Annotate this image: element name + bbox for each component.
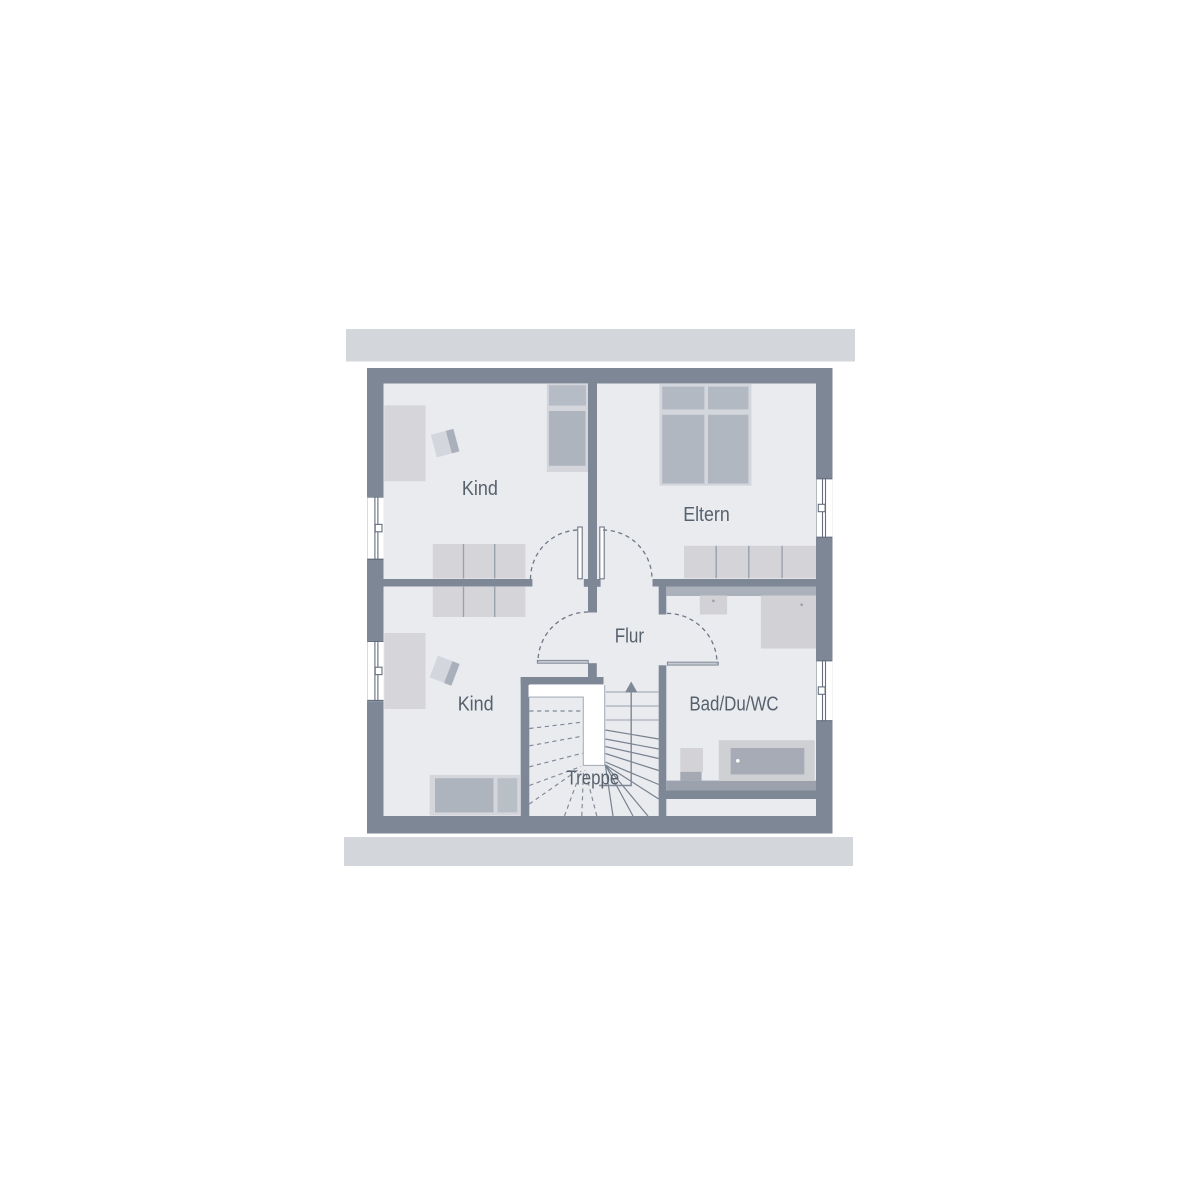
svg-text:Flur: Flur bbox=[615, 624, 645, 647]
svg-text:Bad/Du/WC: Bad/Du/WC bbox=[689, 692, 778, 715]
svg-text:Eltern: Eltern bbox=[683, 503, 730, 526]
svg-text:Treppe: Treppe bbox=[567, 766, 620, 789]
svg-text:Kind: Kind bbox=[458, 692, 494, 715]
svg-text:Kind: Kind bbox=[462, 477, 498, 500]
